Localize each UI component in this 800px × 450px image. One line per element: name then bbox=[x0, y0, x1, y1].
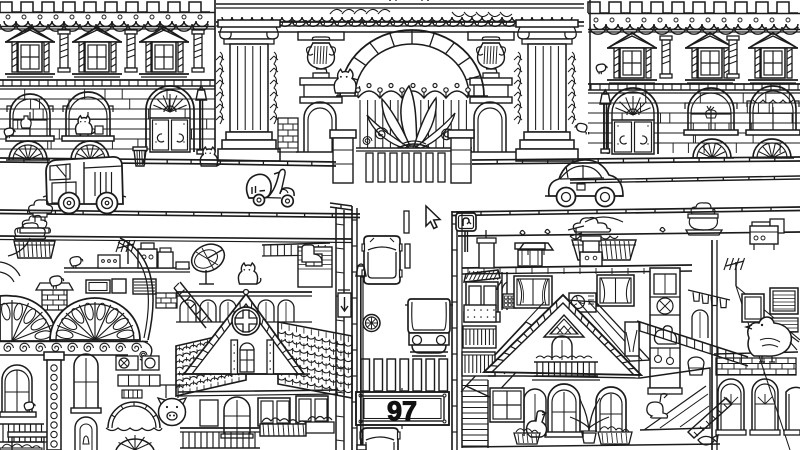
svg-text:97: 97 bbox=[387, 396, 417, 426]
